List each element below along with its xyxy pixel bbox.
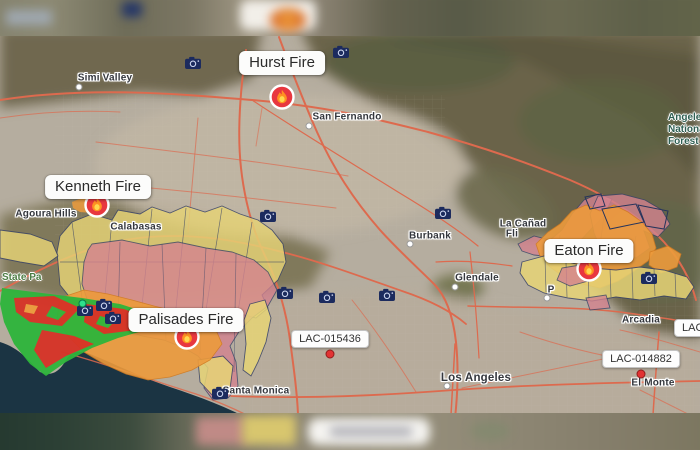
camera-icon[interactable] bbox=[435, 207, 452, 220]
city-dot bbox=[306, 123, 313, 130]
incident-label[interactable]: LAC- bbox=[674, 319, 700, 337]
blurred-bottom-strip bbox=[0, 413, 700, 450]
camera-icon[interactable] bbox=[185, 57, 202, 70]
area-label: Angeles National Forest bbox=[668, 112, 700, 148]
fire-label[interactable]: Kenneth Fire bbox=[45, 175, 151, 199]
city-label: Calabasas bbox=[110, 222, 161, 233]
city-label: Fli bbox=[506, 229, 518, 240]
city-dot bbox=[407, 241, 414, 248]
city-label: San Fernando bbox=[312, 112, 381, 123]
city-dot bbox=[452, 284, 459, 291]
camera-icon[interactable] bbox=[260, 210, 277, 223]
city-label: Los Angeles bbox=[441, 372, 511, 384]
city-label: Burbank bbox=[409, 231, 451, 242]
blurred-top-strip bbox=[0, 0, 700, 36]
camera-icon[interactable] bbox=[212, 387, 229, 400]
map-canvas[interactable]: Simi ValleySan FernandoBurbankGlendalePL… bbox=[0, 0, 700, 450]
city-dot bbox=[544, 295, 551, 302]
marker-layer: Simi ValleySan FernandoBurbankGlendalePL… bbox=[0, 0, 700, 450]
camera-icon[interactable] bbox=[105, 312, 122, 325]
incident-label[interactable]: LAC-014882 bbox=[602, 350, 680, 368]
camera-icon[interactable] bbox=[277, 287, 294, 300]
city-label: Santa Monica bbox=[223, 386, 290, 397]
city-label: P bbox=[548, 285, 555, 296]
city-label: Glendale bbox=[455, 273, 499, 284]
camera-status-dot bbox=[79, 300, 87, 308]
city-dot bbox=[444, 383, 451, 390]
camera-icon[interactable] bbox=[379, 289, 396, 302]
incident-label[interactable]: LAC-015436 bbox=[291, 330, 369, 348]
fire-icon[interactable] bbox=[269, 84, 296, 111]
camera-icon[interactable] bbox=[333, 46, 350, 59]
city-label: Arcadia bbox=[622, 315, 660, 326]
city-dot bbox=[76, 84, 83, 91]
camera-icon[interactable] bbox=[77, 304, 94, 317]
fire-label[interactable]: Hurst Fire bbox=[239, 51, 325, 75]
city-label: El Monte bbox=[631, 378, 674, 389]
area-label: State Pa bbox=[2, 272, 62, 284]
camera-icon[interactable] bbox=[319, 291, 336, 304]
fire-label[interactable]: Palisades Fire bbox=[128, 308, 243, 332]
camera-icon[interactable] bbox=[96, 299, 113, 312]
fire-label[interactable]: Eaton Fire bbox=[544, 239, 633, 263]
incident-marker[interactable] bbox=[637, 370, 646, 379]
camera-icon[interactable] bbox=[641, 272, 658, 285]
city-label: Agoura Hills bbox=[15, 209, 76, 220]
incident-marker[interactable] bbox=[326, 350, 335, 359]
blurred-camera-icon bbox=[122, 2, 142, 17]
city-label: Simi Valley bbox=[78, 73, 132, 84]
